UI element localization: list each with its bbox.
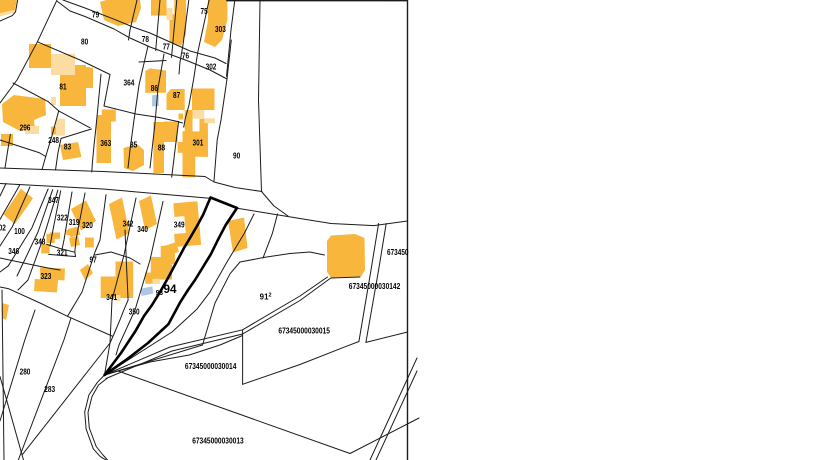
svg-text:81: 81 bbox=[59, 81, 66, 91]
svg-text:76: 76 bbox=[182, 50, 189, 60]
svg-text:67345000030142: 67345000030142 bbox=[349, 282, 401, 291]
svg-text:67345000030013: 67345000030013 bbox=[192, 437, 244, 446]
svg-text:280: 280 bbox=[20, 366, 31, 376]
svg-text:93: 93 bbox=[156, 288, 163, 297]
svg-text:283: 283 bbox=[44, 384, 55, 394]
svg-text:342: 342 bbox=[123, 219, 134, 229]
svg-text:346: 346 bbox=[8, 246, 19, 256]
svg-text:301: 301 bbox=[193, 137, 204, 147]
svg-text:67345000030015: 67345000030015 bbox=[278, 327, 330, 336]
svg-text:97: 97 bbox=[90, 255, 97, 265]
svg-text:349: 349 bbox=[174, 219, 185, 229]
svg-text:79: 79 bbox=[92, 10, 99, 20]
svg-text:86: 86 bbox=[151, 83, 158, 93]
svg-text:85: 85 bbox=[130, 140, 137, 150]
svg-text:364: 364 bbox=[124, 77, 135, 87]
svg-text:340: 340 bbox=[137, 224, 148, 234]
svg-text:90: 90 bbox=[233, 151, 240, 161]
svg-text:319: 319 bbox=[69, 217, 80, 227]
svg-text:320: 320 bbox=[82, 220, 93, 230]
svg-text:75: 75 bbox=[201, 6, 208, 16]
svg-text:100: 100 bbox=[14, 226, 25, 236]
svg-text:87: 87 bbox=[173, 90, 180, 100]
svg-text:341: 341 bbox=[106, 292, 117, 302]
svg-text:88: 88 bbox=[158, 143, 165, 153]
svg-text:94: 94 bbox=[164, 284, 178, 296]
svg-text:323: 323 bbox=[41, 271, 52, 281]
svg-text:78: 78 bbox=[142, 34, 149, 44]
svg-text:347: 347 bbox=[48, 195, 59, 205]
svg-text:83: 83 bbox=[64, 141, 71, 151]
svg-text:67345000030014: 67345000030014 bbox=[185, 362, 237, 371]
svg-text:363: 363 bbox=[100, 138, 111, 148]
svg-text:80: 80 bbox=[81, 37, 88, 47]
svg-text:77: 77 bbox=[163, 42, 170, 52]
svg-text:102: 102 bbox=[0, 223, 6, 233]
svg-text:321: 321 bbox=[57, 248, 68, 258]
svg-text:302: 302 bbox=[206, 62, 217, 72]
svg-text:350: 350 bbox=[129, 307, 140, 317]
svg-text:303: 303 bbox=[215, 24, 226, 34]
svg-text:673450: 673450 bbox=[387, 248, 409, 257]
svg-text:248: 248 bbox=[48, 135, 59, 145]
svg-text:322: 322 bbox=[57, 213, 68, 223]
svg-text:348: 348 bbox=[35, 237, 46, 247]
svg-text:296: 296 bbox=[20, 122, 31, 132]
